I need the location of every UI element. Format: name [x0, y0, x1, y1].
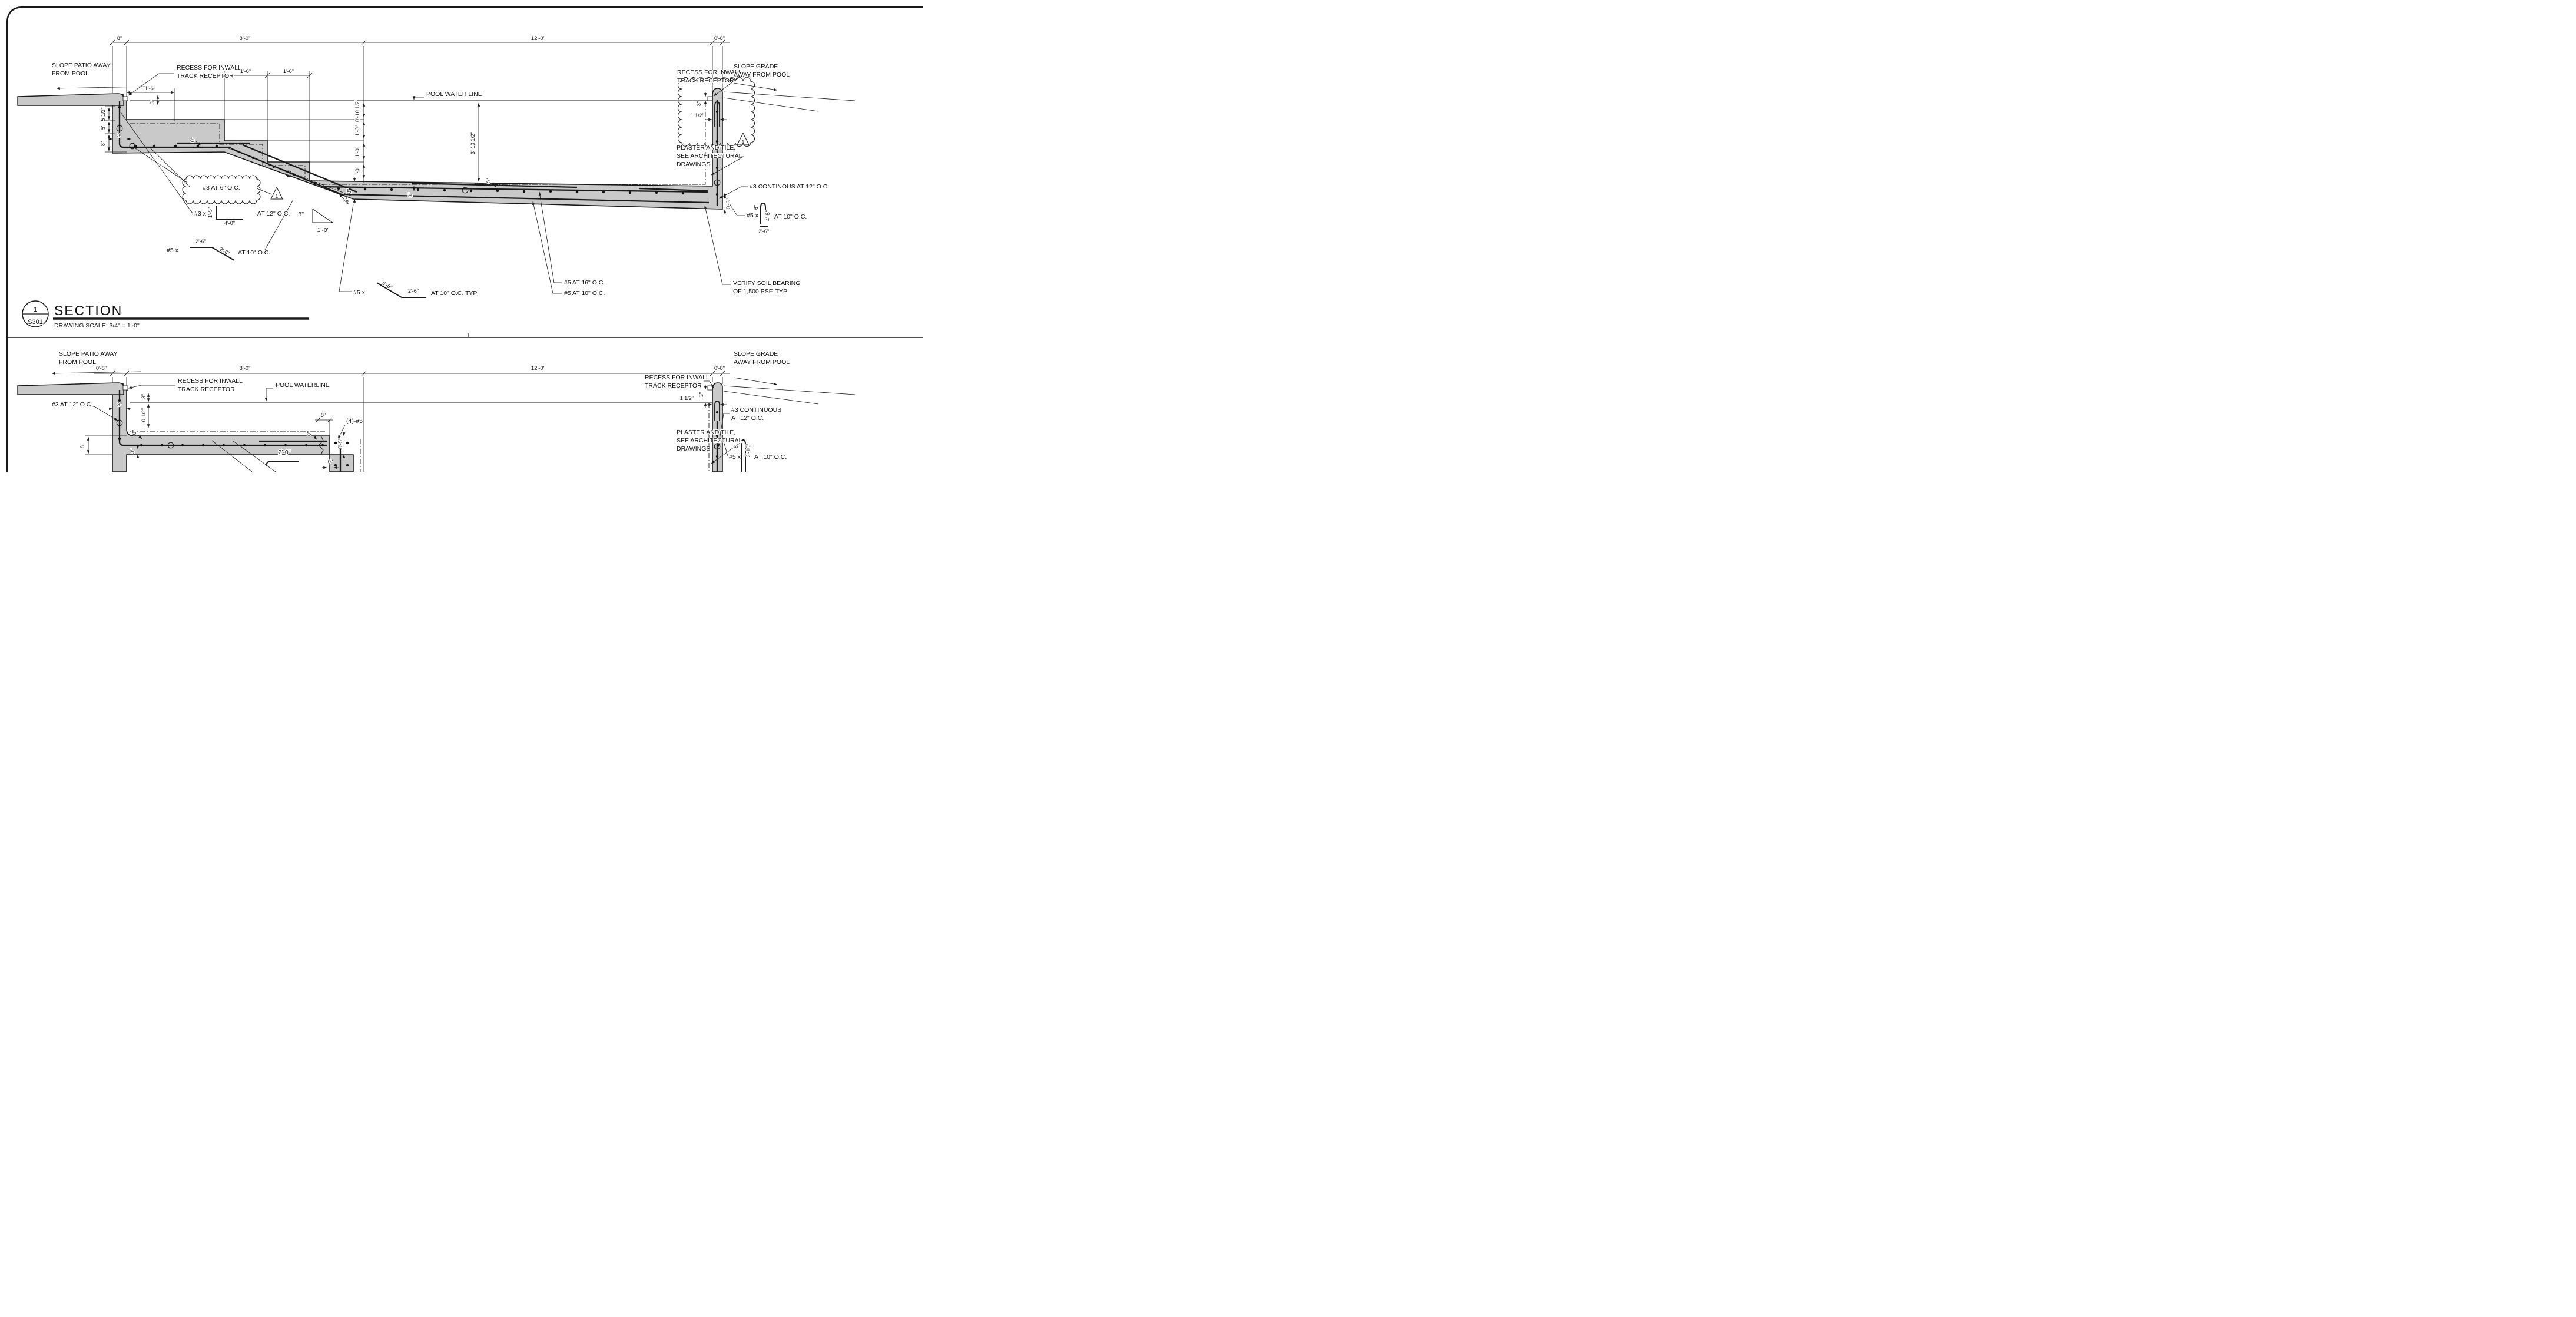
- bar5r-note: #5 x: [747, 212, 759, 219]
- dim-5-half: 5 1/2": [100, 107, 106, 121]
- note-5-at-10: #5 AT 10" O.C.: [564, 290, 605, 297]
- plaster-top-1: PLASTER AND TILE,: [677, 144, 735, 151]
- b-plaster-3: DRAWINGS: [677, 445, 710, 452]
- slope-patio-note-2: FROM POOL: [52, 70, 89, 77]
- verify-soil-1: VERIFY SOIL BEARING: [733, 280, 800, 287]
- dim-1-6-left: 1'-6": [145, 85, 155, 91]
- drawing-sheet: 1 S301 SECTION DRAWING SCALE: 3/4" = 1'-…: [0, 0, 923, 472]
- track-receptor-recess-bottom-left: [123, 386, 128, 390]
- section-drawing-svg: 1 S301 SECTION DRAWING SCALE: 3/4" = 1'-…: [0, 0, 923, 472]
- continuous3-note: #3 CONTINOUS AT 12" O.C.: [750, 183, 829, 190]
- slope-grade-note-2: AWAY FROM POOL: [734, 71, 790, 78]
- bar-shape-glyphs-top: [190, 203, 768, 297]
- b-slope-grade-1: SLOPE GRADE: [734, 350, 778, 358]
- b-cover-3: 3": [130, 449, 135, 454]
- dim-3-right-top: 3": [696, 101, 702, 106]
- detail-number: 1: [34, 306, 37, 313]
- b-bar5-3-10: 3'-10": [745, 444, 751, 458]
- rebar-bottom: [120, 390, 720, 472]
- b-dim-10-half: 10 1/2": [141, 408, 147, 425]
- pool-water-line-note: POOL WATER LINE: [426, 91, 482, 98]
- verify-soil-2: OF 1,500 PSF, TYP: [733, 288, 787, 295]
- b-recess-right-2: TRACK RECEPTOR: [645, 382, 702, 389]
- cloud-note-3-at-6: #3 AT 6" O.C.: [203, 184, 240, 191]
- bar5a-horiz: 2'-6": [195, 239, 206, 244]
- dim-3-recess: 3": [150, 100, 155, 104]
- b-pool-waterline: POOL WATERLINE: [276, 382, 330, 389]
- cover-3-floor: 3": [407, 193, 413, 197]
- b-lap-0-wall: 0": [131, 430, 137, 435]
- b-slope-patio-1: SLOPE PATIO AWAY: [59, 350, 118, 358]
- recess-left-note-1: RECESS FOR INWALL: [177, 64, 241, 71]
- b-dim-2-0: 2'-0": [279, 449, 291, 456]
- bar5a-note: #5 x: [167, 247, 179, 254]
- note-5-at-16: #5 AT 16" O.C.: [564, 279, 605, 286]
- b-dim-0-8-left: 0'-8": [96, 365, 107, 371]
- dim-5: 5": [100, 125, 106, 130]
- plaster-top-3: DRAWINGS: [677, 161, 710, 168]
- bar5r-4-5: 4'-5": [765, 210, 771, 221]
- bar5b-spacing: AT 10" O.C. TYP: [431, 290, 477, 297]
- dim-0-10-half: 0'-10 1/2": [354, 100, 360, 122]
- lap-0-bench: 0": [190, 137, 195, 142]
- b-dim-step-8: 8": [321, 412, 326, 418]
- b-dim-1-1-2: 1 1/2": [680, 395, 694, 401]
- dim-3-10-half: 3'-10 1/2": [470, 132, 476, 154]
- bar5r-2-6: 2'-6": [758, 229, 769, 234]
- dim-wall-8: 8": [117, 35, 122, 41]
- b-dim-3-right: 3": [698, 392, 704, 397]
- bar3-vert-leg: 1'-5": [207, 207, 213, 218]
- b-dim-12ft: 12'-0": [531, 365, 545, 372]
- plaster-top-2: SEE ARCHITECTURAL: [677, 153, 742, 160]
- dim-0-8-right: 0'-8": [714, 35, 725, 41]
- b-recess-left-2: TRACK RECEPTOR: [178, 386, 235, 393]
- b-bar5-spacing: AT 10" O.C.: [754, 454, 787, 461]
- b-recess-right-1: RECESS FOR INWALL: [645, 374, 710, 381]
- dim-12ft: 12'-0": [531, 35, 545, 42]
- patio-slab-bottom: [18, 383, 124, 395]
- bar3-spacing: AT 12" O.C.: [257, 210, 290, 217]
- track-receptor-recess-bottom-right: [708, 386, 712, 390]
- bar5b-horiz: 2'-6": [408, 288, 419, 294]
- b-dim-8-floor: 8": [79, 444, 85, 448]
- dim-1-0-c: 1'-0": [354, 167, 360, 177]
- bar3-horiz-leg: 4'-0": [224, 220, 235, 226]
- sheet-ref: S301: [28, 319, 43, 326]
- b-lap-0-floor: 0": [306, 431, 312, 436]
- dim-1-0-a: 1'-0": [354, 125, 360, 136]
- bar3-note: #3 x: [194, 210, 207, 217]
- slope-triangle: [313, 209, 333, 223]
- slope-patio-note-1: SLOPE PATIO AWAY: [52, 62, 111, 69]
- title-block: 1 S301 SECTION DRAWING SCALE: 3/4" = 1'-…: [22, 301, 309, 329]
- dim-1-0-b: 1'-0": [354, 147, 360, 157]
- slope-triangle-1-0: 1'-0": [317, 227, 330, 234]
- b-plaster-1: PLASTER AND TILE,: [677, 429, 735, 436]
- slope-grade-note-1: SLOPE GRADE: [734, 63, 778, 70]
- b-dim-0-5: 0'-5": [337, 438, 343, 449]
- recess-right-note-2: TRACK RECEPTOR: [677, 77, 734, 84]
- b-dim-0-8-right: 0'-8": [714, 365, 725, 371]
- dim-8ft: 8'-0": [240, 35, 251, 42]
- bottom-dims: [85, 385, 727, 468]
- dim-1-1-2-top: 1 1/2": [691, 112, 704, 118]
- b-plaster-2: SEE ARCHITECTURAL: [677, 437, 742, 444]
- dim-8-wall-left: 8": [100, 141, 106, 146]
- b-slope-grade-2: AWAY FROM POOL: [734, 359, 790, 366]
- b-bar5-8: 8": [733, 444, 739, 448]
- track-receptor-recess-left: [123, 97, 128, 101]
- b-dim-3-vert: 3": [141, 394, 147, 399]
- b-slope-patio-2: FROM POOL: [59, 359, 96, 366]
- b-recess-left-1: RECESS FOR INWALL: [178, 378, 243, 385]
- recess-right-note-1: RECESS FOR INWALL: [677, 69, 742, 76]
- b-continuous-2: AT 12" O.C.: [731, 415, 764, 422]
- scale-note: DRAWING SCALE: 3/4" = 1'-0": [54, 322, 140, 329]
- lap-0-floor: 0": [486, 178, 492, 183]
- recess-left-note-2: TRACK RECEPTOR: [177, 72, 234, 80]
- slope-triangle-8: 8": [298, 211, 304, 218]
- dim-3-wall-left: 3": [117, 133, 122, 138]
- bar5r-6: 6": [753, 205, 759, 210]
- rev-triangle-top-right: 1: [742, 140, 745, 145]
- b-3-at-12: #3 AT 12" O.C.: [52, 401, 92, 408]
- b-bar5-note: #5 x: [729, 454, 741, 461]
- track-receptor-recess-right: [708, 97, 712, 101]
- b-dim-8ft: 8'-0": [240, 365, 251, 372]
- rebar-dots-bottom: [118, 399, 718, 466]
- b-lap-0-step: 0": [328, 459, 333, 465]
- bar5b-note: #5 x: [353, 289, 366, 296]
- b-note-4-5bars: (4)-#5: [346, 418, 363, 425]
- bar5a-spacing: AT 10" O.C.: [238, 249, 270, 256]
- top-dimension-row: [110, 40, 730, 183]
- section-title: SECTION: [54, 303, 122, 318]
- rev-triangle-top-left: 1: [276, 194, 279, 199]
- dim-1-6-b: 1'-6": [283, 68, 294, 74]
- b-continuous-1: #3 CONTINUOUS: [731, 406, 781, 413]
- patio-slab-top: [18, 94, 124, 105]
- b-dim-3-wall: 3": [117, 402, 122, 408]
- bar5r-spacing: AT 10" O.C.: [774, 213, 807, 220]
- dim-0-3: 0'-3": [725, 198, 731, 209]
- dim-1-6-a: 1'-6": [240, 68, 251, 74]
- dim-floor-8: 8": [346, 189, 352, 194]
